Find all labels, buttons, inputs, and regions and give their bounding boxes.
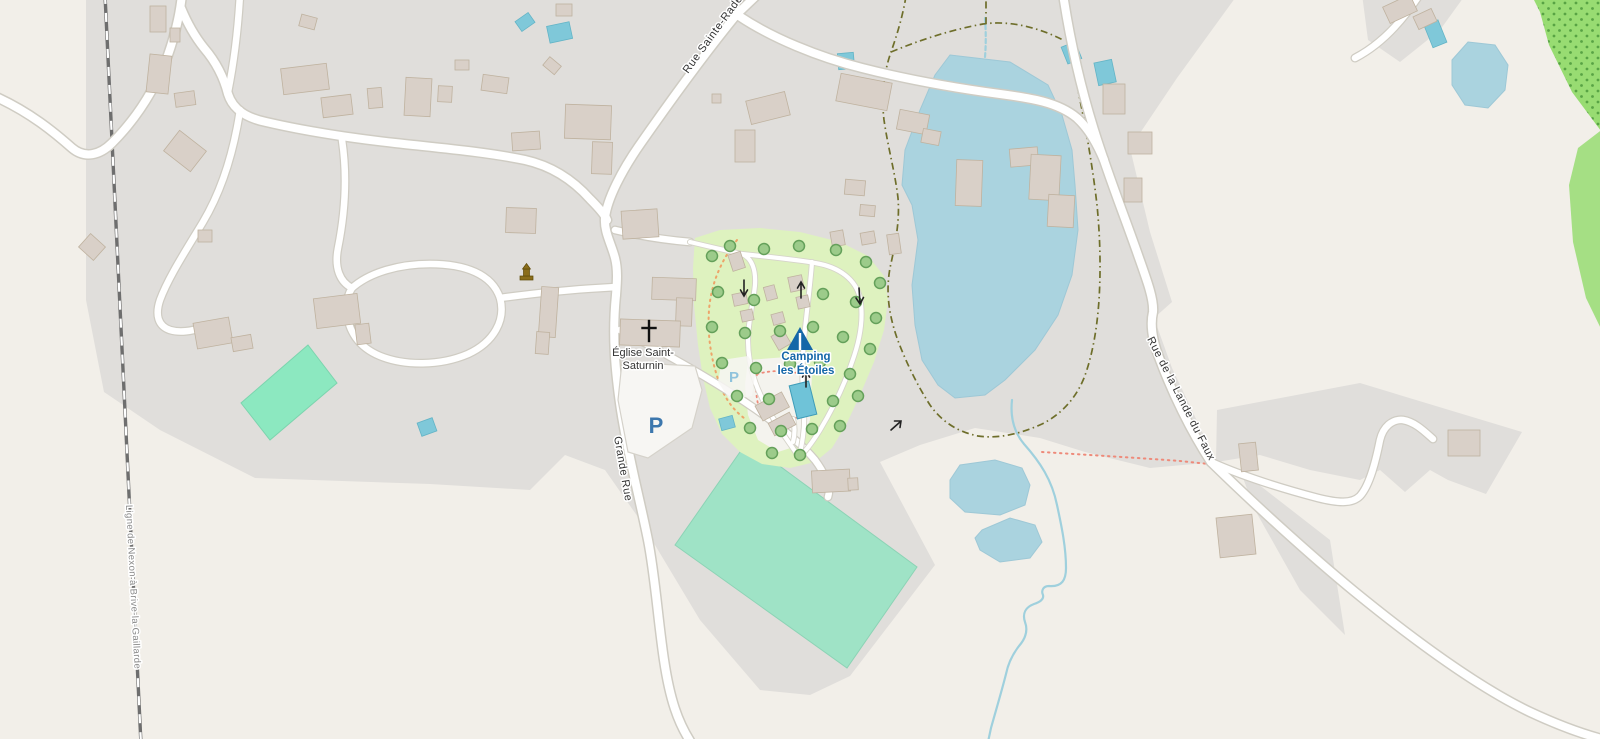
church-label-line2: Saturnin: [623, 360, 664, 372]
parking-letter-main: P: [649, 413, 664, 438]
map-canvas[interactable]: P P Église Saint- Saturnin Camping les É…: [0, 0, 1600, 739]
map-root[interactable]: P P Église Saint- Saturnin Camping les É…: [0, 0, 1600, 739]
pond-south-1: [950, 460, 1030, 515]
campsite-label-line2: les Étoiles: [778, 364, 835, 377]
campsite-label-line1: Camping: [781, 351, 830, 363]
parking-letter-camping: P: [729, 369, 739, 386]
church-label-line1: Église Saint-: [612, 346, 674, 359]
